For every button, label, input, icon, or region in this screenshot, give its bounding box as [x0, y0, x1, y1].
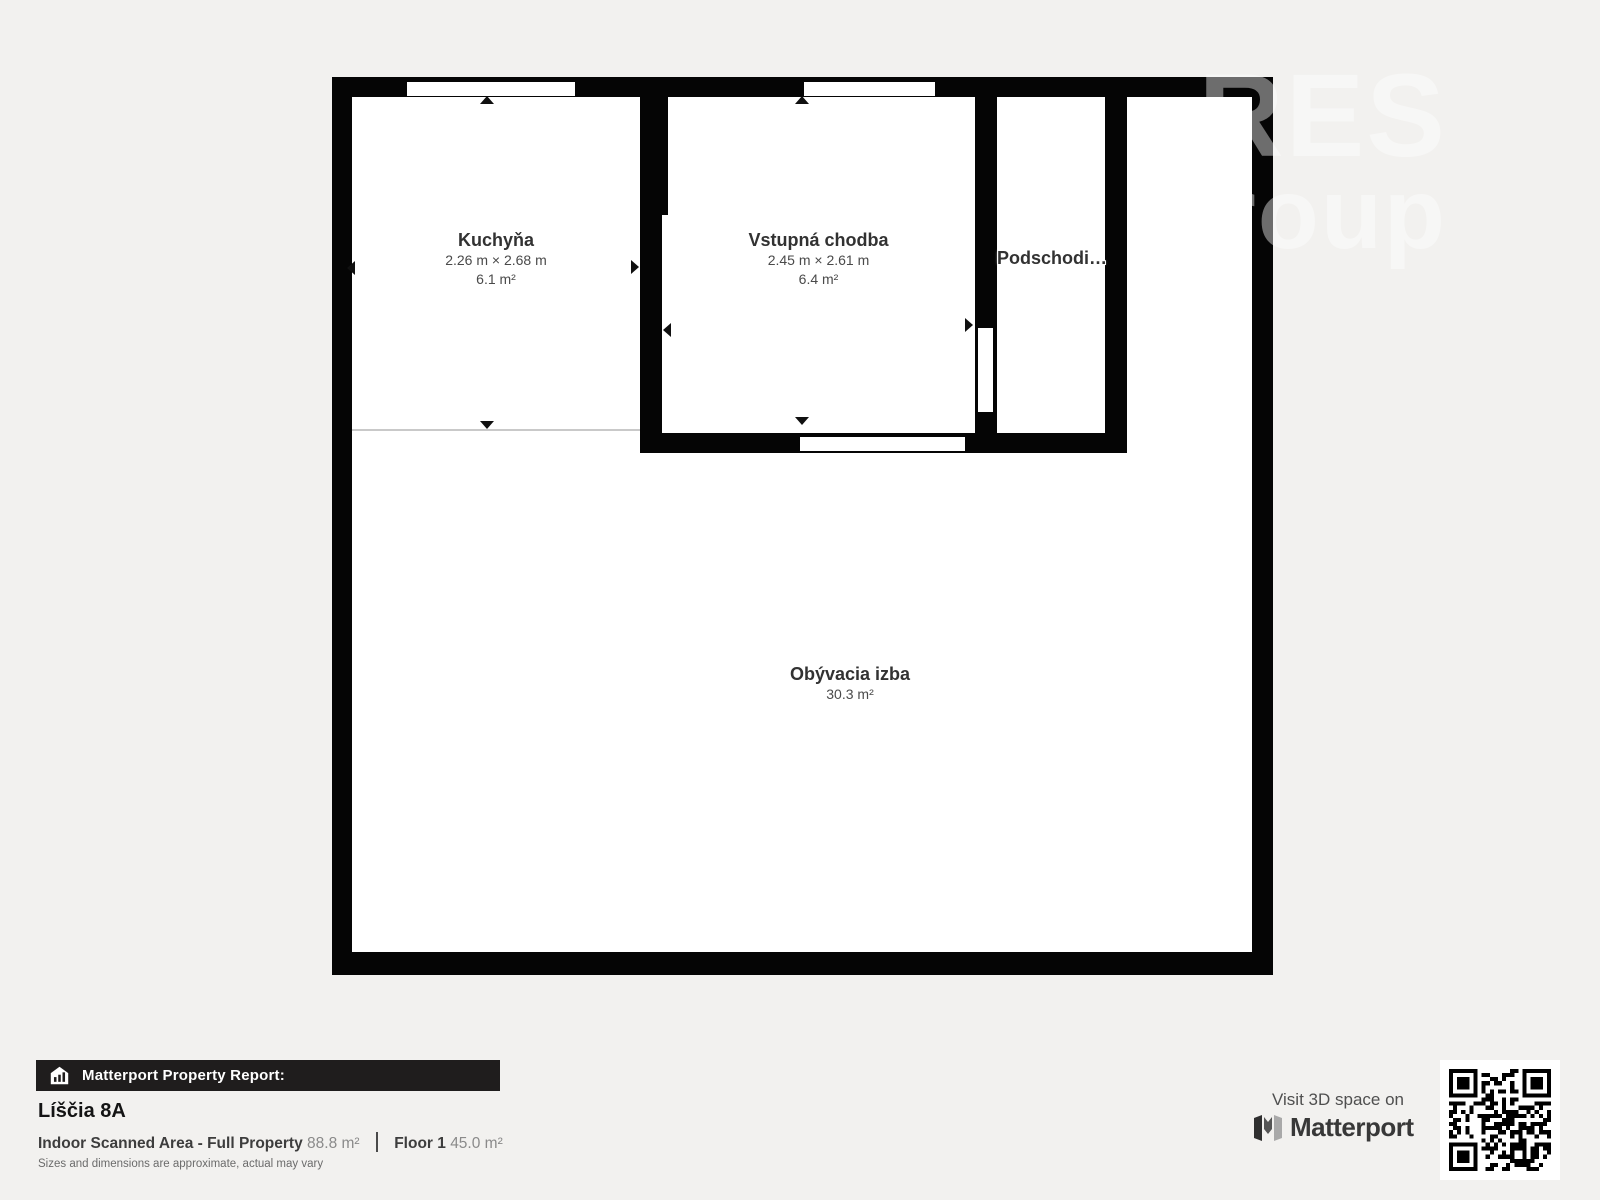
report-banner-title: Matterport Property Report: [82, 1067, 285, 1084]
room-label-kitchen: Kuchyňa 2.26 m × 2.68 m 6.1 m² [352, 229, 640, 289]
room-dimensions: 2.45 m × 2.61 m [662, 251, 975, 270]
visit-3d-text: Visit 3D space on [1255, 1090, 1421, 1110]
room-title: Obývacia izba [600, 663, 1100, 685]
floor-plan: Kuchyňa 2.26 m × 2.68 m 6.1 m² Vstupná c… [332, 77, 1273, 975]
window-opening-kitchen [407, 82, 575, 96]
floor-value: 45.0 m² [450, 1135, 503, 1152]
room-title: Kuchyňa [352, 229, 640, 251]
scanned-area-value: 88.8 m² [307, 1135, 360, 1152]
matterport-wordmark: Matterport [1290, 1112, 1414, 1143]
door-opening-understairs [978, 328, 993, 412]
area-summary: Indoor Scanned Area - Full Property 88.8… [38, 1132, 503, 1153]
door-opening-hall-bottom [800, 437, 965, 451]
room-label-living: Obývacia izba 30.3 m² [600, 663, 1100, 704]
measure-arrow-right-icon [965, 318, 973, 332]
room-dimensions: 2.26 m × 2.68 m [352, 251, 640, 270]
measure-arrow-up-icon [795, 96, 809, 104]
qr-code [1440, 1060, 1560, 1180]
measure-arrow-up-icon [480, 96, 494, 104]
room-area: 30.3 m² [600, 685, 1100, 704]
divider [376, 1132, 378, 1152]
room-label-entrance-hall: Vstupná chodba 2.45 m × 2.61 m 6.4 m² [662, 229, 975, 289]
measure-arrow-down-icon [795, 417, 809, 425]
open-boundary-kitchen-living [352, 429, 640, 431]
qr-code-pattern [1449, 1069, 1551, 1171]
room-area: 6.4 m² [662, 270, 975, 289]
measure-arrow-left-icon [663, 323, 671, 337]
room-title: Vstupná chodba [662, 229, 975, 251]
wall-hall-left-upper [662, 97, 668, 215]
room-label-understairs: Podschodi… [997, 247, 1105, 269]
room-title: Podschodi… [997, 247, 1105, 269]
report-banner: Matterport Property Report: [36, 1060, 500, 1091]
scanned-area-label: Indoor Scanned Area - Full Property [38, 1135, 303, 1152]
matterport-logo-icon [1253, 1114, 1283, 1142]
property-name: Líščia 8A [38, 1100, 126, 1123]
floor-label: Floor 1 [394, 1135, 446, 1152]
window-opening-hall [804, 82, 935, 96]
disclaimer-text: Sizes and dimensions are approximate, ac… [38, 1158, 323, 1170]
house-chart-icon [50, 1066, 69, 1085]
measure-arrow-down-icon [480, 421, 494, 429]
room-area: 6.1 m² [352, 270, 640, 289]
